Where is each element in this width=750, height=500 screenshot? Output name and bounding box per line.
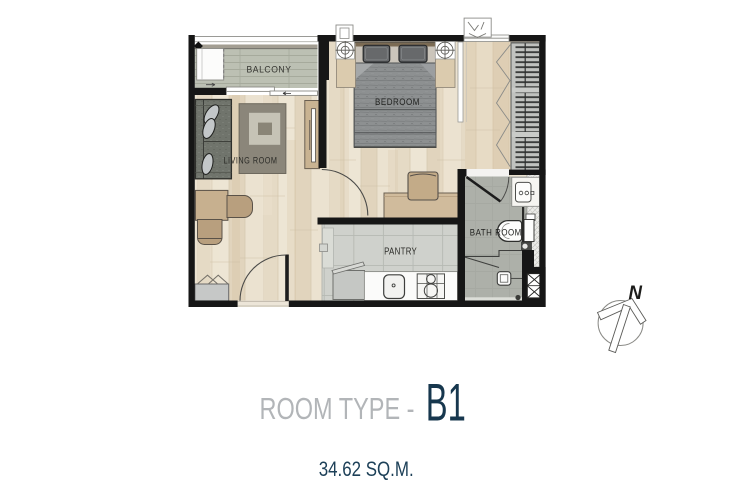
svg-text:BALCONY: BALCONY <box>247 65 292 75</box>
svg-text:LIVING ROOM: LIVING ROOM <box>224 156 278 166</box>
svg-text:BEDROOM: BEDROOM <box>375 97 420 108</box>
svg-text:BATH ROOM: BATH ROOM <box>470 227 522 238</box>
svg-text:ROOM TYPE -: ROOM TYPE - <box>260 392 415 426</box>
svg-text:PANTRY: PANTRY <box>384 245 417 257</box>
svg-text:34.62 SQ.M.: 34.62 SQ.M. <box>319 457 414 481</box>
svg-text:B1: B1 <box>426 374 466 433</box>
svg-text:N: N <box>629 283 644 304</box>
